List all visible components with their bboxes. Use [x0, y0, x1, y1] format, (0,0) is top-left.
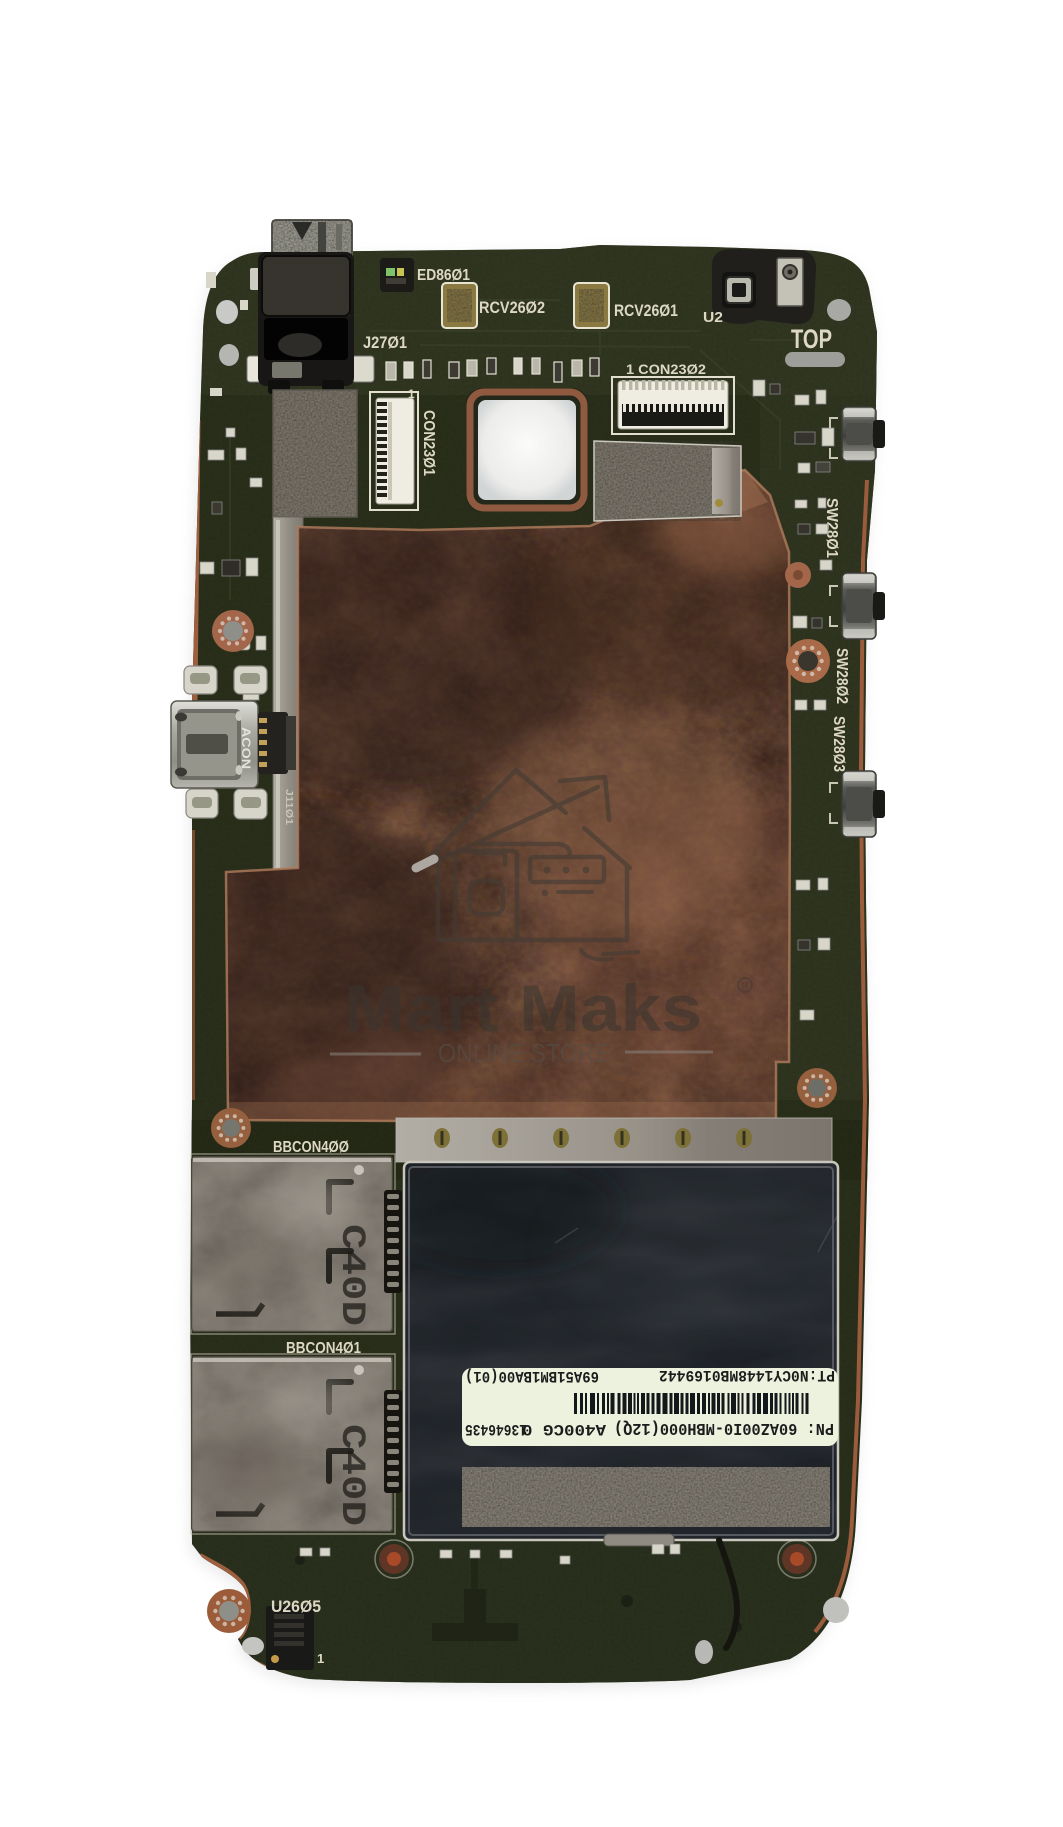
svg-text:C40D: C40D — [332, 1424, 370, 1526]
svg-text:Mart Maks: Mart Maks — [344, 971, 702, 1045]
svg-text:69A51BM1BA00(01): 69A51BM1BA00(01) — [465, 1367, 599, 1385]
svg-text:RCV26Ø2: RCV26Ø2 — [479, 298, 545, 317]
svg-text:U26Ø5: U26Ø5 — [271, 1597, 321, 1616]
svg-text:SW28Ø2: SW28Ø2 — [833, 648, 850, 704]
svg-text:J27Ø1: J27Ø1 — [363, 333, 407, 352]
svg-text:RCV26Ø1: RCV26Ø1 — [614, 301, 678, 320]
svg-text:1 CON23Ø2: 1 CON23Ø2 — [626, 361, 706, 377]
svg-text:TOP: TOP — [791, 324, 832, 354]
svg-text:ED86Ø1: ED86Ø1 — [417, 267, 470, 284]
svg-text:13646435: 13646435 — [465, 1420, 527, 1438]
svg-text:1: 1 — [408, 387, 415, 401]
svg-text:R: R — [741, 981, 748, 992]
svg-text:ACON: ACON — [239, 727, 253, 769]
svg-text:J11Ø1: J11Ø1 — [283, 789, 294, 826]
svg-text:SW28Ø3: SW28Ø3 — [830, 716, 847, 772]
svg-text:C40D: C40D — [332, 1224, 370, 1326]
svg-text:PT:N0CY1448MB0169442: PT:N0CY1448MB0169442 — [659, 1366, 835, 1384]
svg-text:ONLINE STORE: ONLINE STORE — [438, 1038, 610, 1068]
svg-text:1: 1 — [317, 1651, 324, 1666]
svg-text:A400CG 0: A400CG 0 — [522, 1420, 606, 1438]
svg-text:U2: U2 — [703, 309, 723, 326]
svg-text:PN: 60AZ00I0-MBH000(12Q): PN: 60AZ00I0-MBH000(12Q) — [614, 1418, 834, 1437]
svg-text:CON23Ø1: CON23Ø1 — [420, 410, 437, 476]
